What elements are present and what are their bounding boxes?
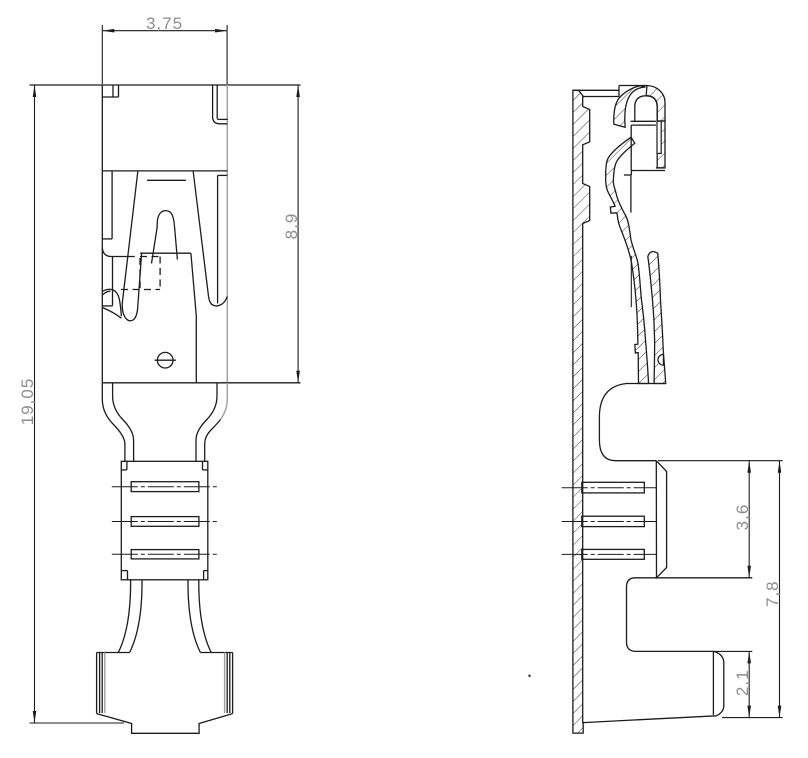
svg-text:3,6: 3,6: [733, 504, 752, 531]
svg-text:3,75: 3,75: [146, 14, 183, 33]
svg-text:8,9: 8,9: [282, 213, 301, 240]
svg-text:19,05: 19,05: [18, 378, 37, 426]
svg-text:7,8: 7,8: [763, 580, 782, 607]
svg-text:2,1: 2,1: [733, 669, 752, 696]
